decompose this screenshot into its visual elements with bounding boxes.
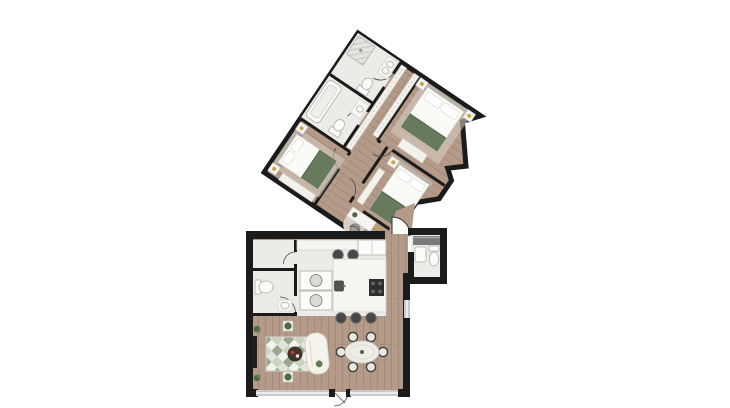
- dining-chair: [366, 332, 375, 341]
- cooktop: [369, 279, 384, 296]
- washer-door-icon: [310, 275, 322, 287]
- lower-wing: [246, 231, 410, 406]
- dining-chair: [348, 332, 357, 341]
- table-decor: [360, 350, 364, 354]
- balcony-door-swing: [334, 392, 348, 406]
- island-sink: [335, 281, 344, 291]
- guest-sink: [415, 247, 426, 262]
- dining-chair: [336, 347, 345, 356]
- sofa: [304, 332, 330, 375]
- coffee-table: [288, 347, 303, 362]
- toilet-bowl-icon: [259, 281, 273, 293]
- toilet-tank: [429, 246, 439, 251]
- floor-plan-svg: [0, 0, 730, 408]
- potted-plant: [283, 321, 293, 331]
- dining-chair: [348, 362, 357, 371]
- bar-stool: [351, 313, 361, 323]
- toilet-bowl-icon: [429, 252, 438, 266]
- coffee-table-decor: [291, 351, 295, 355]
- faucet-icon: [343, 285, 346, 288]
- floor-plan-canvas: [0, 0, 730, 408]
- dining-chair: [366, 362, 375, 371]
- dryer-door-icon: [310, 295, 322, 307]
- bar-stool: [336, 313, 346, 323]
- coffee-table-decor: [296, 354, 300, 358]
- guest-bathroom: [408, 228, 447, 284]
- tv-sideboard: [253, 336, 258, 368]
- balcony-door: [329, 389, 335, 397]
- sink-basin-icon: [281, 302, 289, 308]
- bar-stool: [366, 313, 376, 323]
- potted-plant: [283, 372, 293, 382]
- dining-chair: [378, 347, 387, 356]
